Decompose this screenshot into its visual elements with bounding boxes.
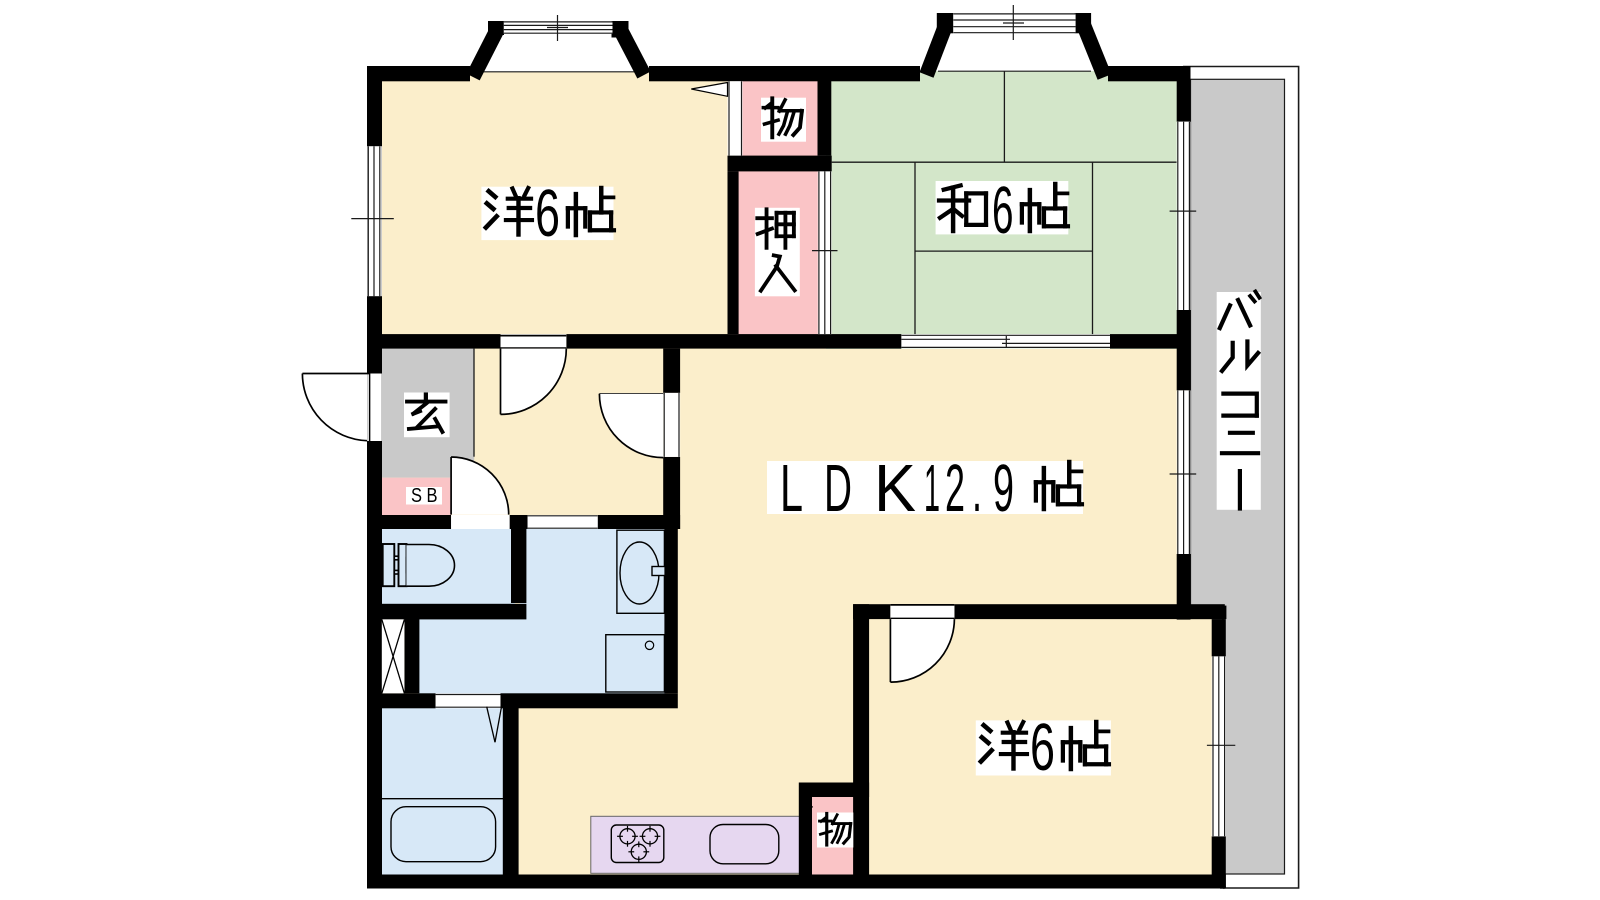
svg-text:S: S	[411, 485, 422, 507]
svg-text:D: D	[824, 451, 852, 526]
svg-text:6: 6	[535, 176, 560, 251]
svg-text:2: 2	[945, 451, 965, 526]
svg-text:6: 6	[992, 173, 1014, 248]
svg-text:9: 9	[993, 451, 1014, 526]
svg-text:6: 6	[1030, 710, 1055, 785]
svg-text:K: K	[874, 451, 916, 526]
svg-text:.: .	[972, 451, 982, 526]
svg-text:B: B	[427, 485, 438, 507]
svg-text:1: 1	[924, 451, 940, 526]
svg-text:L: L	[780, 451, 803, 526]
